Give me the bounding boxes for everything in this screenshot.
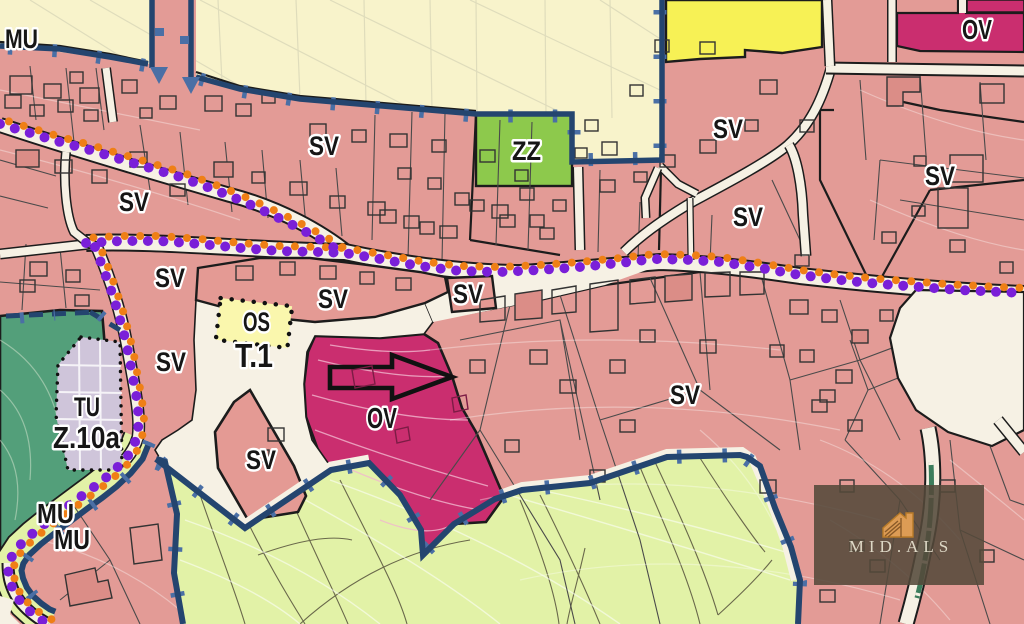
- svg-text:MU: MU: [5, 24, 38, 54]
- svg-text:Z.10a: Z.10a: [53, 420, 121, 455]
- svg-text:SV: SV: [246, 445, 276, 475]
- svg-text:ZZ: ZZ: [512, 136, 541, 166]
- svg-text:SV: SV: [119, 187, 149, 217]
- svg-text:SV: SV: [925, 161, 955, 191]
- svg-text:SV: SV: [453, 279, 483, 309]
- svg-text:SV: SV: [318, 284, 348, 314]
- svg-text:T.1: T.1: [235, 337, 273, 374]
- svg-text:SV: SV: [309, 131, 339, 161]
- svg-text:SV: SV: [713, 114, 743, 144]
- svg-text:SV: SV: [156, 347, 186, 377]
- svg-text:SV: SV: [670, 380, 700, 410]
- svg-text:SV: SV: [155, 263, 185, 293]
- svg-text:OS: OS: [243, 307, 270, 337]
- svg-text:SV: SV: [733, 202, 763, 232]
- svg-text:MID.ALS: MID.ALS: [849, 537, 953, 556]
- svg-text:OV: OV: [367, 403, 397, 435]
- svg-text:TU: TU: [74, 392, 100, 422]
- svg-text:MU: MU: [54, 524, 90, 555]
- svg-text:OV: OV: [962, 14, 992, 45]
